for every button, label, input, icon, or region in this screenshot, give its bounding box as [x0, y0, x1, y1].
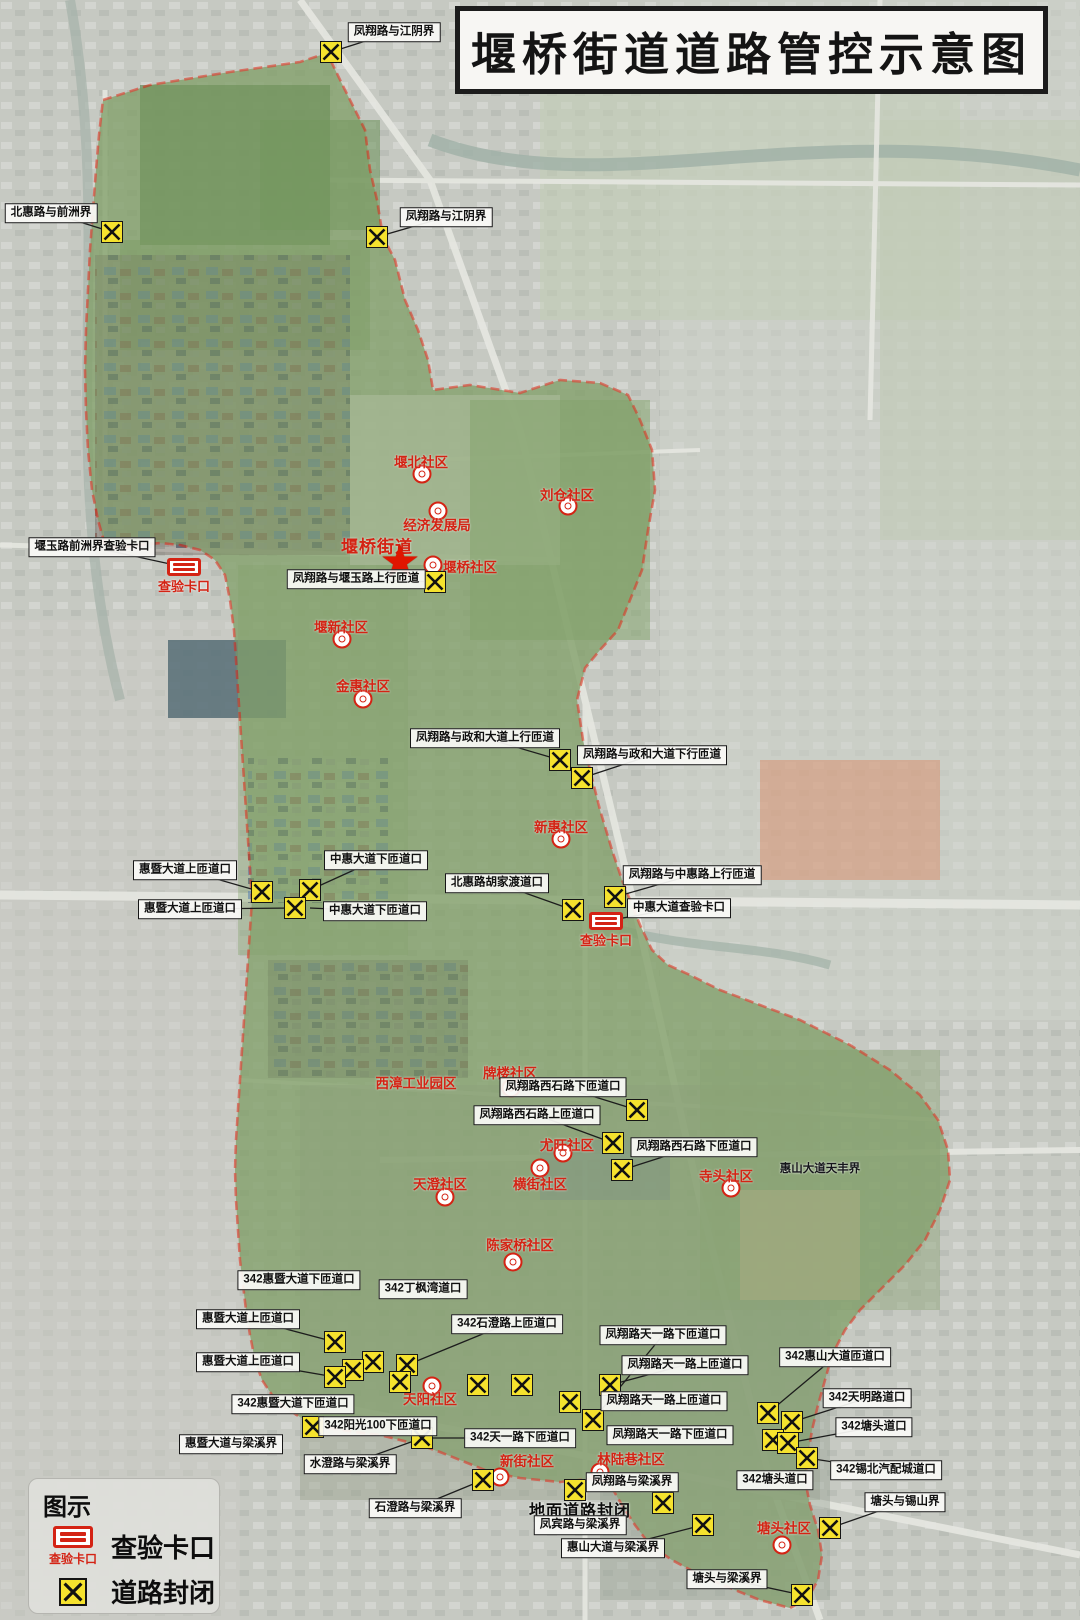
road-label: 凤翔路西石路下匝道口 [631, 1137, 758, 1157]
road-label: 惠暨大道上匝道口 [196, 1309, 300, 1329]
road-closure-marker [652, 1492, 674, 1514]
road-closure-marker [366, 226, 388, 248]
road-closure-marker [389, 1371, 411, 1393]
map-title-box: 堰桥街道道路管控示意图 [455, 6, 1048, 94]
road-label: 342塘头道口 [835, 1417, 912, 1437]
road-label: 惠山大道与梁溪界 [561, 1538, 665, 1558]
road-closure-marker [324, 1366, 346, 1388]
road-label: 342惠山大道匝道口 [779, 1347, 891, 1367]
road-label: 塘头与锡山界 [865, 1492, 946, 1512]
road-label: 水澄路与梁溪界 [304, 1454, 397, 1474]
road-label: 342塘头道口 [736, 1470, 813, 1490]
road-label: 342天明路道口 [823, 1388, 912, 1408]
road-closure-marker [424, 571, 446, 593]
community-label: 堰桥社区 [443, 556, 497, 576]
checkpoint-marker [167, 558, 201, 576]
road-closure-marker [101, 221, 123, 243]
community-label: 天澄社区 [413, 1173, 467, 1193]
road-closure-marker [781, 1411, 803, 1433]
road-closure-marker [626, 1099, 648, 1121]
road-label: 342天一路下匝道口 [464, 1428, 576, 1448]
road-label: 堰玉路前洲界查验卡口 [29, 537, 156, 557]
road-label: 342惠暨大道下匝道口 [231, 1394, 354, 1414]
community-marker [773, 1536, 792, 1555]
road-closure-marker [602, 1132, 624, 1154]
road-label: 342锡北汽配城道口 [830, 1460, 942, 1480]
community-label: 尤旺社区 [540, 1134, 594, 1154]
community-label: 陈家桥社区 [486, 1234, 554, 1254]
road-closure-marker [604, 886, 626, 908]
legend-header: 图示 [43, 1487, 219, 1522]
road-label: 342石澄路上匝道口 [451, 1314, 563, 1334]
road-label: 中惠大道下匝道口 [323, 901, 427, 921]
community-marker [504, 1253, 523, 1272]
map-title: 堰桥街道道路管控示意图 [471, 18, 1032, 83]
road-label: 惠暨大道上匝道口 [196, 1352, 300, 1372]
road-closure-marker [559, 1391, 581, 1413]
road-label: 北惠路胡家渡道口 [445, 873, 549, 893]
road-label: 北惠路与前洲界 [5, 203, 98, 223]
road-closure-icon [59, 1578, 87, 1606]
road-label: 凤翔路天一路上匝道口 [601, 1391, 728, 1411]
community-label: 横街社区 [513, 1173, 567, 1193]
road-label: 凤翔路天一路上匝道口 [622, 1355, 749, 1375]
checkpoint-icon [53, 1526, 93, 1548]
community-label: 刘仓社区 [540, 484, 594, 504]
road-closure-marker [757, 1402, 779, 1424]
community-label: 经济发展局 [403, 514, 471, 534]
road-label: 凤翔路与江阴界 [400, 207, 493, 227]
legend-checkpoint-label: 查验卡口 [111, 1528, 215, 1565]
road-closure-marker [284, 897, 306, 919]
road-closure-marker [251, 881, 273, 903]
community-label: 堰新社区 [314, 616, 368, 636]
road-label: 石澄路与梁溪界 [369, 1498, 462, 1518]
community-label: 西漳工业园区 [376, 1072, 457, 1092]
road-closure-marker [511, 1374, 533, 1396]
road-closure-marker [467, 1374, 489, 1396]
road-closure-marker [362, 1351, 384, 1373]
community-label: 新街社区 [500, 1450, 554, 1470]
road-label: 塘头与梁溪界 [687, 1569, 768, 1589]
road-closure-marker [791, 1584, 813, 1606]
community-label: 寺头社区 [699, 1165, 753, 1185]
legend-item-checkpoint: 查验卡口 查验卡口 [41, 1526, 219, 1567]
road-label: 342阳光100下匝道口 [318, 1416, 437, 1436]
road-label: 凤翔路与梁溪界 [586, 1472, 679, 1492]
road-label: 凤翔路西石路下匝道口 [500, 1077, 627, 1097]
checkpoint-icon-caption: 查验卡口 [49, 1550, 97, 1567]
road-closure-marker [564, 1479, 586, 1501]
road-closure-marker [324, 1331, 346, 1353]
map-annotations-layer: 凤翔路与江阴界北惠路与前洲界凤翔路与江阴界堰玉路前洲界查验卡口凤翔路与堰玉路上行… [0, 0, 1080, 1620]
road-label: 惠暨大道上匝道口 [133, 860, 237, 880]
road-label: 凤翔路与政和大道下行匝道 [577, 745, 727, 765]
road-closure-marker [472, 1469, 494, 1491]
road-closure-marker [549, 749, 571, 771]
checkpoint-caption: 查验卡口 [158, 576, 210, 595]
road-control-map: 凤翔路与江阴界北惠路与前洲界凤翔路与江阴界堰玉路前洲界查验卡口凤翔路与堰玉路上行… [0, 0, 1080, 1620]
road-label: 342惠暨大道下匝道口 [237, 1270, 360, 1290]
road-closure-marker [562, 899, 584, 921]
road-closure-marker [571, 767, 593, 789]
road-label: 凤翔路与江阴界 [348, 22, 441, 42]
road-label: 凤翔路与中惠路上行匝道 [623, 865, 762, 885]
road-label: 凤翔路与政和大道上行匝道 [410, 728, 560, 748]
road-label: 凤翔路与堰玉路上行匝道 [287, 569, 426, 589]
community-label: 林陆巷社区 [597, 1448, 665, 1468]
road-label: 凤翔路天一路下匝道口 [600, 1325, 727, 1345]
map-text-label: 惠山大道天丰界 [780, 1160, 861, 1176]
road-label: 中惠大道下匝道口 [324, 850, 428, 870]
road-closure-marker [611, 1159, 633, 1181]
road-label: 凤翔路天一路下匝道口 [607, 1425, 734, 1445]
community-label: 堰北社区 [394, 451, 448, 471]
road-closure-marker [320, 41, 342, 63]
community-label: 新惠社区 [534, 816, 588, 836]
legend-road-closure-label: 道路封闭 [111, 1573, 215, 1610]
legend-item-road-closure: 道路封闭 [41, 1573, 219, 1610]
road-label: 凤宾路与梁溪界 [534, 1515, 627, 1535]
road-label: 惠暨大道上匝道口 [138, 899, 242, 919]
checkpoint-marker [589, 912, 623, 930]
road-label: 凤翔路西石路上匝道口 [474, 1105, 601, 1125]
road-closure-marker [582, 1409, 604, 1431]
community-label: 塘头社区 [757, 1517, 811, 1537]
road-closure-marker [796, 1447, 818, 1469]
road-label: 342丁枫湾道口 [379, 1279, 468, 1299]
road-label: 惠暨大道与梁溪界 [179, 1434, 283, 1454]
road-closure-marker [819, 1517, 841, 1539]
legend: 图示 查验卡口 查验卡口 道路封闭 [28, 1478, 220, 1614]
community-label: 天阳社区 [403, 1388, 457, 1408]
community-label: 金惠社区 [336, 675, 390, 695]
road-closure-marker [692, 1514, 714, 1536]
road-label: 中惠大道查验卡口 [627, 898, 731, 918]
checkpoint-caption: 查验卡口 [580, 930, 632, 949]
